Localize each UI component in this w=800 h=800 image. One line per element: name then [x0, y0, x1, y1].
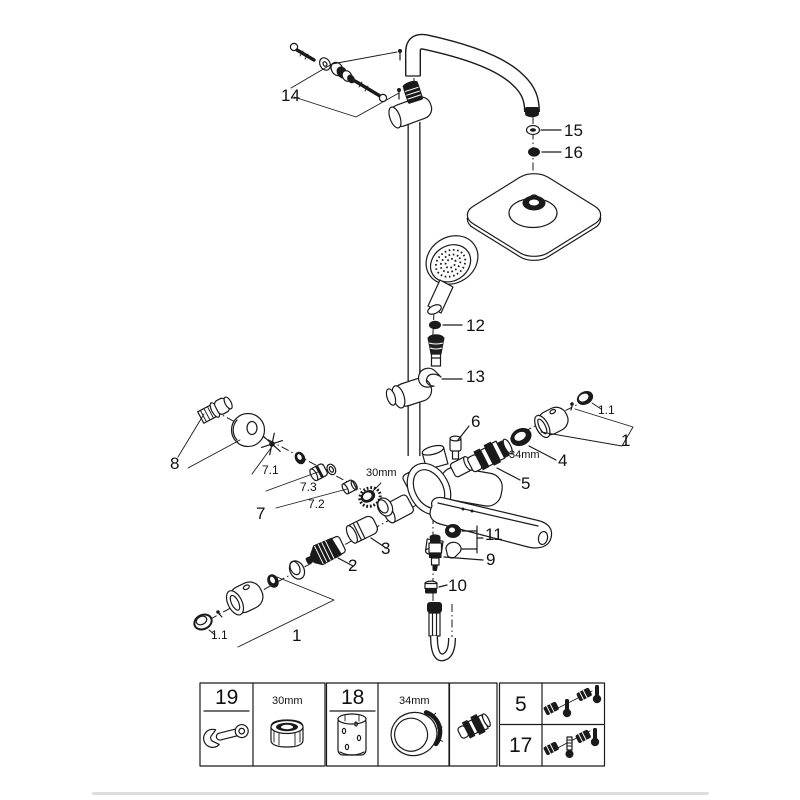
diagram-canvas	[0, 0, 800, 800]
kit-17-icon	[543, 728, 599, 758]
o-ring-small	[293, 450, 308, 466]
legend-number-19: 19	[215, 687, 238, 708]
callout-8: 8	[170, 455, 179, 472]
collar-ring	[287, 558, 308, 581]
bushing-7-2	[341, 479, 359, 496]
callout-1-1-bottom: 1.1	[211, 629, 228, 641]
callout-7-1: 7.1	[262, 464, 279, 476]
union-connector-8	[178, 395, 265, 468]
callout-10: 10	[448, 577, 467, 594]
seal-12	[429, 321, 462, 329]
pipe-top-fitting	[387, 79, 435, 129]
legend-number-18: 18	[341, 687, 364, 708]
kit-5-icon	[543, 685, 601, 717]
screw-icon	[355, 81, 387, 102]
callout-6: 6	[471, 413, 480, 430]
wall-bracket-parts-14	[290, 43, 399, 117]
callout-3: 3	[381, 540, 390, 557]
sleeve-3	[344, 514, 386, 548]
shower-holder-13	[385, 368, 462, 409]
callout-1-1-right: 1.1	[598, 404, 615, 416]
hose-nut-icon	[428, 334, 444, 366]
thermostat-cartridge-2	[302, 534, 353, 571]
nut-30mm-icon	[271, 720, 303, 747]
callout-9: 9	[486, 551, 495, 568]
callout-16: 16	[564, 144, 583, 161]
size-34mm: 34mm	[509, 450, 540, 461]
callout-13: 13	[466, 368, 485, 385]
legend-size-34mm: 34mm	[399, 696, 430, 707]
axis-lines	[198, 78, 592, 637]
page-divider	[92, 792, 709, 795]
callout-11: 11	[485, 526, 503, 543]
hand-shower	[417, 226, 487, 316]
hose-connector	[427, 602, 452, 657]
size-30mm: 30mm	[366, 468, 397, 479]
callout-7-2: 7.2	[308, 498, 325, 510]
leader-6	[458, 426, 469, 440]
check-valve-icon	[455, 710, 493, 743]
nut-30mm	[357, 483, 396, 519]
callout-15: 15	[564, 122, 583, 139]
callout-4: 4	[558, 452, 567, 469]
callout-1-bottom: 1	[292, 627, 301, 644]
callout-5: 5	[521, 475, 530, 492]
mounting-pins	[397, 49, 402, 99]
seal-15	[527, 126, 562, 135]
callout-7-3: 7.3	[300, 481, 317, 493]
callout-1-right: 1	[621, 432, 630, 449]
adapter-10	[425, 581, 447, 593]
parts-diagram-page: 14 15 16 12 13 6 1.1 1 34mm 4 5 8 7.1 30…	[0, 0, 800, 800]
callout-7: 7	[256, 505, 265, 522]
sleeve-18-icon	[338, 714, 366, 755]
legend-number-5: 5	[515, 694, 527, 715]
plug-6	[450, 436, 461, 459]
seal-16	[528, 147, 561, 156]
legend-size-30mm: 30mm	[272, 696, 303, 707]
callout-14: 14	[281, 87, 300, 104]
wrench-icon	[202, 721, 250, 749]
callout-2: 2	[348, 557, 357, 574]
ring-34mm-icon	[386, 706, 447, 760]
legend-number-17: 17	[509, 735, 532, 756]
head-shower	[459, 169, 609, 266]
callout-12: 12	[466, 317, 485, 334]
screw-icon	[290, 43, 314, 60]
